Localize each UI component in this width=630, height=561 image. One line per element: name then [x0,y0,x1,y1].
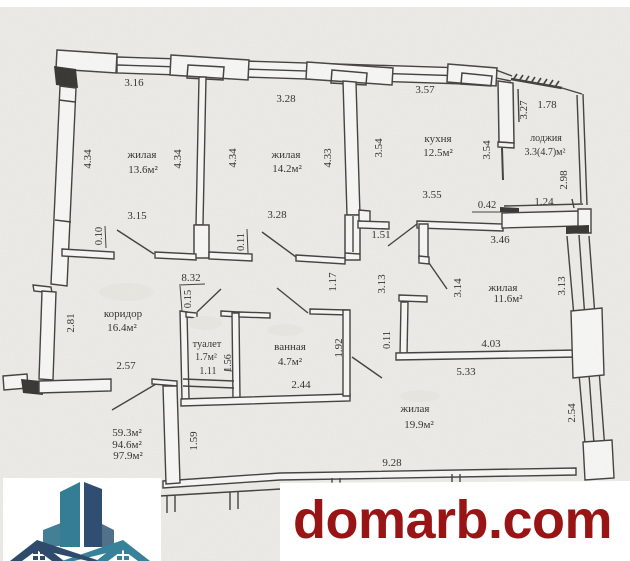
svg-text:domarb.com: domarb.com [293,490,612,550]
